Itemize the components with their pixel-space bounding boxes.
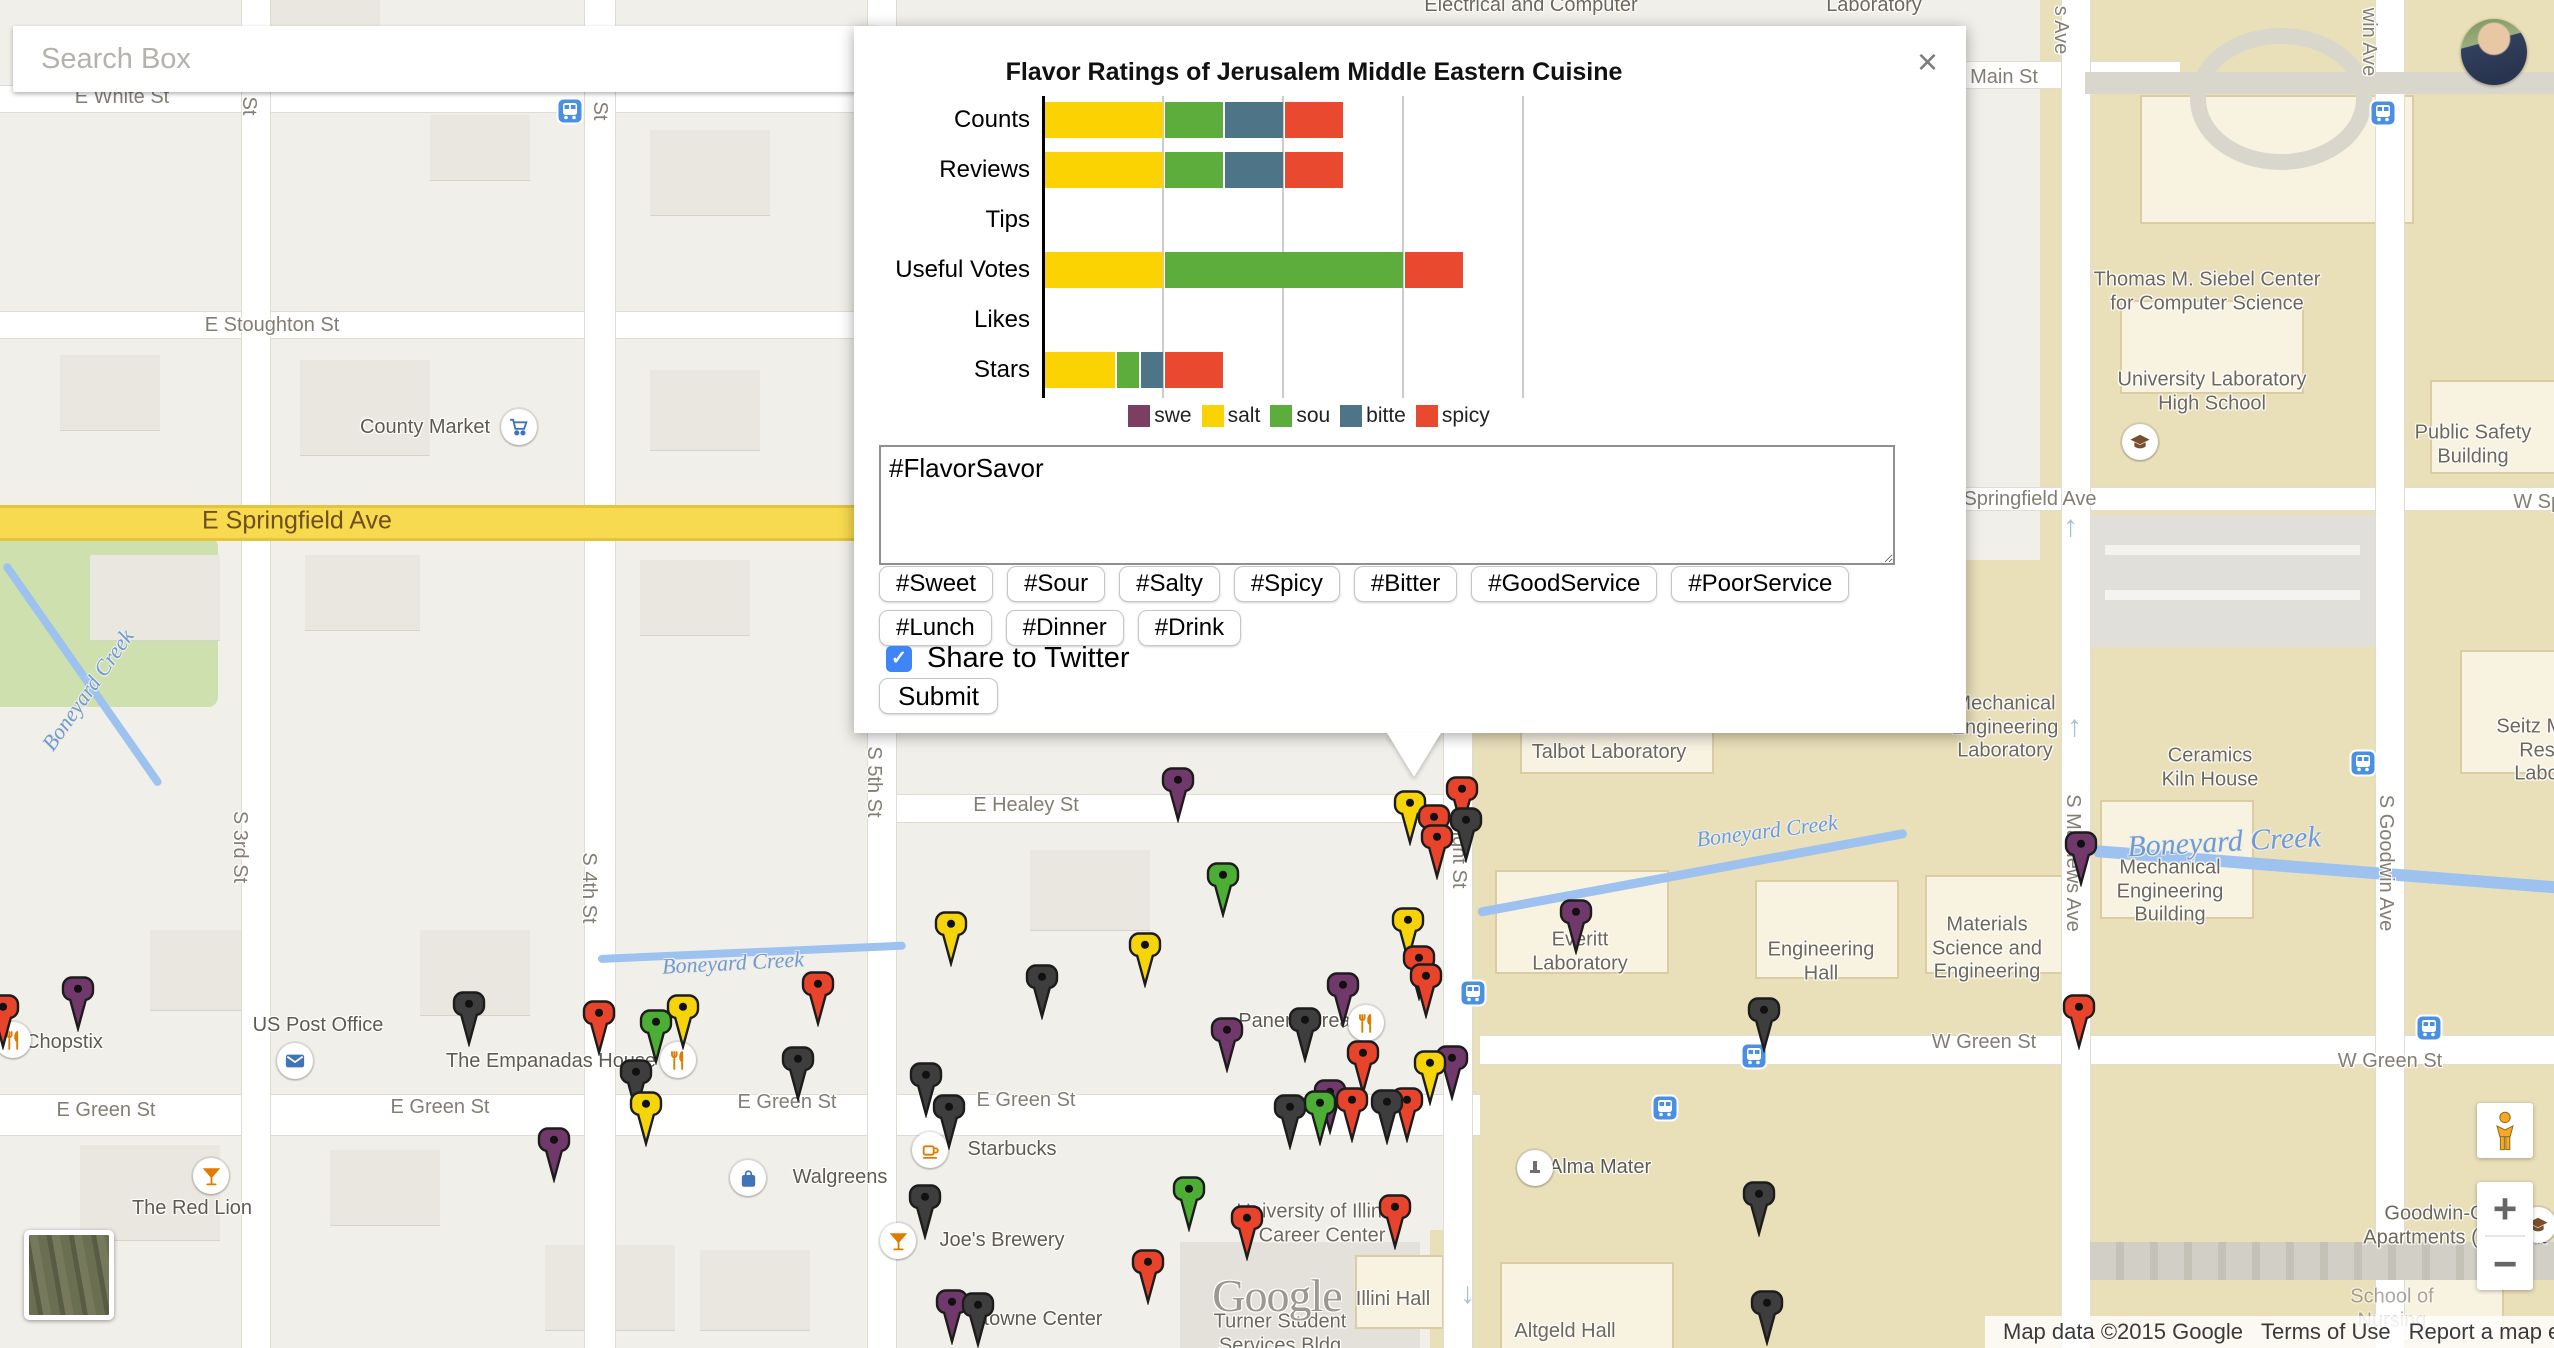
user-avatar[interactable] (2461, 19, 2527, 85)
report-map-error-link[interactable]: Report a map error (2409, 1319, 2554, 1345)
pegman-control[interactable] (2477, 1103, 2533, 1158)
legend-item: swe (1128, 404, 1195, 428)
legend-swatch (1270, 405, 1292, 427)
building (300, 360, 430, 455)
search-input[interactable] (13, 26, 879, 92)
map-marker-green[interactable] (1171, 1174, 1207, 1232)
map-marker-black[interactable] (931, 1092, 967, 1150)
chart-category-label: Counts (854, 106, 1030, 134)
hashtag-button-poorservice[interactable]: #PoorService (1671, 566, 1849, 602)
map-marker-red[interactable] (1130, 1247, 1166, 1305)
building (650, 370, 760, 450)
building (700, 1250, 810, 1330)
bar-useful-votes-spicy (1405, 252, 1463, 288)
building (305, 555, 420, 630)
map-marker-black[interactable] (1746, 995, 1782, 1053)
building (1030, 850, 1150, 930)
bus-stop-icon[interactable] (1651, 1094, 1679, 1122)
hashtag-button-sour[interactable]: #Sour (1007, 566, 1105, 602)
road (242, 0, 270, 1348)
dialog-tail (1387, 733, 1441, 777)
monument-icon[interactable] (1517, 1150, 1553, 1186)
map-marker-purple[interactable] (2063, 829, 2099, 887)
map-label: S 3rd St (227, 811, 251, 883)
map-label: University Laboratory High School (2118, 368, 2307, 415)
map-data-text: Map data ©2015 Google (2003, 1319, 2243, 1345)
map-label: Starbucks (968, 1138, 1057, 1162)
building (60, 355, 160, 430)
map-label: The Red Lion (132, 1197, 252, 1221)
map-label: County Market (360, 416, 490, 440)
bar-useful-votes-sour (1165, 252, 1403, 288)
hashtag-button-spicy[interactable]: #Spicy (1234, 566, 1340, 602)
bar-reviews-spicy (1285, 152, 1343, 188)
legend-label: salt (1228, 404, 1261, 428)
map-label: Laboratory (1826, 0, 1922, 18)
building (80, 1145, 220, 1240)
parking-lot (2085, 515, 2385, 647)
map-marker-black[interactable] (1024, 962, 1060, 1020)
map-marker-black[interactable] (907, 1182, 943, 1240)
map-marker-black[interactable] (960, 1290, 996, 1348)
hashtag-button-dinner[interactable]: #Dinner (1006, 610, 1124, 646)
bus-stop-icon[interactable] (1459, 979, 1487, 1007)
bar-counts-spicy (1285, 102, 1343, 138)
map-label: S Goodwin Ave (2373, 795, 2397, 931)
map-label: Joe's Brewery (940, 1229, 1065, 1253)
mail-icon[interactable] (277, 1043, 313, 1079)
map-label: St (587, 102, 611, 121)
chart-category-label: Stars (854, 356, 1030, 384)
legend-swatch (1340, 405, 1362, 427)
gradcap-icon[interactable] (2122, 424, 2158, 460)
campus-loop-road (2190, 28, 2372, 170)
hashtag-row-2: #Lunch#Dinner#Drink (879, 610, 1255, 646)
one-way-arrow-icon: ↑ (2067, 710, 2082, 744)
map-label: Mechanical Engineering Laboratory (1952, 693, 2059, 764)
map-label: Main St (1970, 66, 2038, 90)
pegman-icon (2488, 1111, 2522, 1151)
bar-reviews-bitter (1225, 152, 1283, 188)
map-marker-red[interactable] (1229, 1203, 1265, 1261)
map-marker-red[interactable] (2061, 992, 2097, 1050)
chart-gridline (1402, 96, 1404, 398)
map-marker-red[interactable] (1408, 961, 1444, 1019)
map-label: W Green St (1932, 1031, 2036, 1055)
road (2376, 0, 2404, 1348)
legend-item: sou (1270, 404, 1334, 428)
bar-stars-salty (1045, 352, 1115, 388)
map-marker-red[interactable] (0, 992, 21, 1050)
map-label: Springfield Ave (1963, 488, 2096, 512)
chart-gridline (1282, 96, 1284, 398)
map-label: US Post Office (253, 1014, 384, 1038)
legend-label: bitte (1366, 404, 1406, 428)
legend-item: bitte (1340, 404, 1410, 428)
legend-swatch (1202, 405, 1224, 427)
attribution-bar: Map data ©2015 Google Terms of Use Repor… (1985, 1316, 2554, 1348)
bar-counts-bitter (1225, 102, 1283, 138)
legend-label: sou (1296, 404, 1330, 428)
terms-of-use-link[interactable]: Terms of Use (2261, 1319, 2391, 1345)
map-marker-red[interactable] (1377, 1192, 1413, 1250)
map-label: Ceramics Kiln House (2162, 744, 2259, 791)
chart-category-label: Likes (854, 306, 1030, 334)
map-marker-purple[interactable] (1209, 1015, 1245, 1073)
zoom-out-button[interactable]: − (2477, 1237, 2533, 1290)
map-marker-purple[interactable] (1325, 970, 1361, 1028)
share-row: ✓ Share to Twitter (886, 642, 1130, 675)
share-to-twitter-label: Share to Twitter (927, 642, 1130, 675)
road (2062, 0, 2090, 1348)
map-label: S 5th St (861, 746, 885, 817)
map-label: E Green St (391, 1096, 490, 1120)
bar-reviews-sour (1165, 152, 1223, 188)
submit-button[interactable]: Submit (879, 678, 998, 714)
chart-category-label: Tips (854, 206, 1030, 234)
bus-stop-icon[interactable] (2349, 749, 2377, 777)
map-label: E Green St (977, 1089, 1076, 1113)
zoom-control: + − (2477, 1182, 2533, 1290)
bar-useful-votes-salty (1045, 252, 1163, 288)
map-label: Engineering Hall (1768, 938, 1875, 985)
legend-label: spicy (1442, 404, 1490, 428)
zoom-in-button[interactable]: + (2477, 1182, 2533, 1235)
map-label: Walgreens (793, 1166, 888, 1190)
building (430, 115, 530, 180)
map-marker-green[interactable] (1205, 860, 1241, 918)
bar-reviews-salty (1045, 152, 1163, 188)
hashtag-button-salty[interactable]: #Salty (1119, 566, 1220, 602)
share-to-twitter-checkbox[interactable]: ✓ (886, 646, 912, 672)
hashtag-row-1: #Sweet#Sour#Salty#Spicy#Bitter#GoodServi… (879, 566, 1863, 602)
hashtag-button-drink[interactable]: #Drink (1138, 610, 1241, 646)
hashtag-button-sweet[interactable]: #Sweet (879, 566, 993, 602)
road (0, 312, 900, 338)
chart-legend: swesaltsoubittespicy (1004, 404, 1624, 428)
hashtag-button-bitter[interactable]: #Bitter (1354, 566, 1457, 602)
legend-item: salt (1202, 404, 1265, 428)
map-marker-yellow[interactable] (1127, 930, 1163, 988)
map-label: Mechanical Engineering Building (2117, 857, 2224, 928)
road (585, 0, 615, 1348)
map-marker-purple[interactable] (1558, 897, 1594, 955)
map-marker-purple[interactable] (1160, 765, 1196, 823)
map-marker-black[interactable] (1272, 1092, 1308, 1150)
bar-stars-spicy (1165, 352, 1223, 388)
legend-label: swe (1154, 404, 1191, 428)
bar-stars-bitter (1141, 352, 1163, 388)
bus-stop-icon[interactable] (556, 97, 584, 125)
map-label: Electrical and Computer (1424, 0, 1637, 18)
map-label: S 4th St (576, 852, 600, 923)
tweet-textarea[interactable]: #FlavorSavor (879, 445, 1895, 565)
parking-lane (2105, 590, 2360, 600)
bar-stars-sour (1117, 352, 1139, 388)
map-label: E Springfield Ave (202, 506, 392, 536)
map-marker-red[interactable] (1334, 1085, 1370, 1143)
map-marker-yellow[interactable] (628, 1089, 664, 1147)
map-label: St (236, 97, 260, 116)
map-marker-red[interactable] (581, 998, 617, 1056)
bar-counts-sour (1165, 102, 1223, 138)
close-icon[interactable]: × (1917, 44, 1938, 80)
map-marker-black[interactable] (451, 989, 487, 1047)
map-marker-black[interactable] (1749, 1288, 1785, 1346)
building (650, 130, 770, 215)
map-label: towne Center (984, 1308, 1103, 1332)
flavor-ratings-dialog: × Flavor Ratings of Jerusalem Middle Eas… (854, 26, 1966, 733)
bus-stop-icon[interactable] (2369, 99, 2397, 127)
chart-category-label: Reviews (854, 156, 1030, 184)
bus-stop-icon[interactable] (2415, 1014, 2443, 1042)
legend-item: spicy (1416, 404, 1494, 428)
map-label: Thomas M. Siebel Center for Computer Sci… (2094, 268, 2321, 315)
parking-lane (2105, 545, 2360, 555)
map-label: Alma Mater (1549, 1156, 1651, 1180)
map-label: E Green St (57, 1099, 156, 1123)
map-marker-black[interactable] (1287, 1005, 1323, 1063)
map-label: E Healey St (973, 794, 1079, 818)
satellite-toggle-thumbnail[interactable] (24, 1230, 114, 1320)
map-label: win Ave (2356, 8, 2380, 77)
bar-counts-salty (1045, 102, 1163, 138)
chart-title: Flavor Ratings of Jerusalem Middle Easte… (1004, 58, 1624, 87)
one-way-arrow-icon: ↓ (1460, 1277, 1475, 1311)
map-marker-black[interactable] (1369, 1087, 1405, 1145)
building (330, 1150, 440, 1225)
cart-icon[interactable] (501, 409, 537, 445)
map-label: Chopstix (25, 1031, 103, 1055)
hashtag-button-goodservice[interactable]: #GoodService (1471, 566, 1657, 602)
chart-gridline (1522, 96, 1524, 398)
map-label: Google (1212, 1269, 1341, 1323)
legend-swatch (1128, 405, 1150, 427)
map-label: s Ave (2048, 6, 2072, 55)
map-label: W Green St (2338, 1050, 2442, 1074)
chart-category-label: Useful Votes (854, 256, 1030, 284)
bag-icon[interactable] (730, 1160, 766, 1196)
building (640, 560, 750, 635)
app: E White StStStE Stoughton StE Springfiel… (0, 0, 2554, 1348)
map-label: Altgeld Hall (1514, 1320, 1615, 1344)
map-label: Materials Science and Engineering (1932, 914, 2042, 985)
map-marker-red[interactable] (800, 969, 836, 1027)
map-marker-black[interactable] (1741, 1179, 1777, 1237)
map-marker-purple[interactable] (536, 1125, 572, 1183)
hashtag-button-lunch[interactable]: #Lunch (879, 610, 992, 646)
cocktail-icon[interactable] (193, 1158, 229, 1194)
building (90, 555, 220, 640)
legend-swatch (1416, 405, 1438, 427)
map-marker-red[interactable] (1419, 822, 1455, 880)
map-label: W Springfield Ave (2513, 491, 2554, 515)
map-label: Public Safety Building (2415, 421, 2532, 468)
map-label: Illini Hall (1356, 1288, 1430, 1312)
map-marker-black[interactable] (780, 1044, 816, 1102)
one-way-arrow-icon: ↑ (2063, 510, 2078, 544)
map-marker-yellow[interactable] (933, 909, 969, 967)
map-label: E Stoughton St (205, 314, 340, 338)
map-label: Talbot Laboratory (1532, 741, 1687, 765)
map-marker-purple[interactable] (60, 974, 96, 1032)
map-label: Seitz Materials Research Laboratory (2496, 716, 2554, 787)
